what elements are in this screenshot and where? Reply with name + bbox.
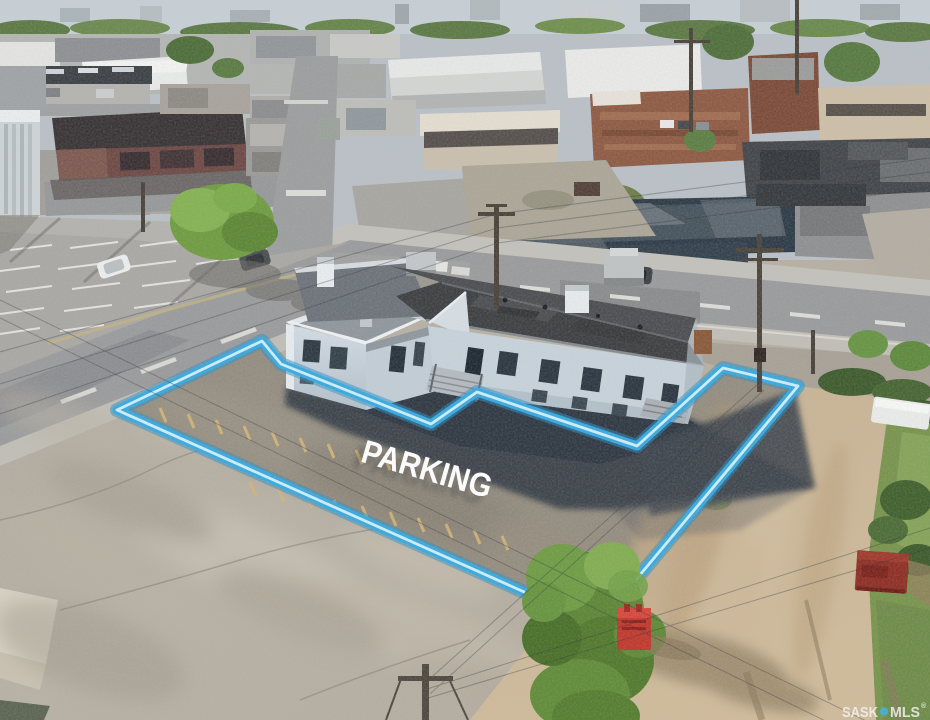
svg-text:MLS: MLS [890,704,920,720]
svg-text:SASK: SASK [842,704,878,720]
svg-text:®: ® [921,702,927,710]
